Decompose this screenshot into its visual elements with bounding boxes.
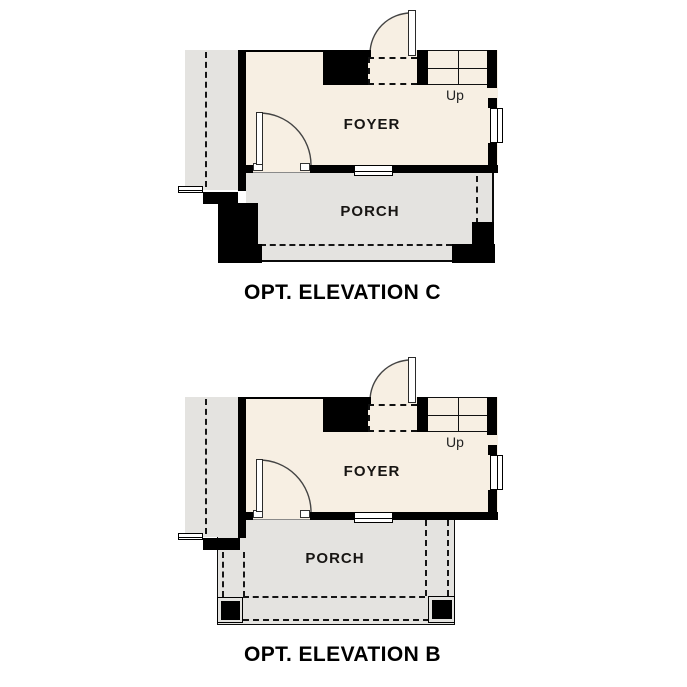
- garage-slab: [185, 397, 238, 537]
- porch-dashed-left-outer: [222, 552, 224, 597]
- right-wall-bottom: [488, 490, 497, 514]
- porch-dashed-front-upper: [243, 596, 425, 598]
- foyer-front-window: [354, 165, 393, 176]
- plan-caption: OPT. ELEVATION C: [180, 281, 505, 304]
- right-wall-mid: [488, 445, 497, 455]
- porch-room-label: PORCH: [325, 204, 415, 221]
- porch-column-left-lower: [218, 244, 262, 263]
- foyer-top-wall-line: [246, 397, 324, 399]
- plan-elevation-c: FOYER Up PORCH OPT. ELEVATION C: [180, 8, 505, 328]
- stairs-up-label: Up: [438, 435, 472, 450]
- garage-centerline-dashed: [205, 399, 207, 534]
- front-door-leaf: [408, 10, 416, 56]
- entry-wall-left: [323, 397, 371, 432]
- porch-right-edge-line: [492, 172, 494, 224]
- foyer-top-wall-line: [246, 50, 324, 52]
- right-wall-top: [487, 397, 497, 435]
- garage-window: [178, 186, 203, 193]
- porch-column-left-upper: [218, 203, 258, 244]
- porch-dashed-right-inner: [425, 520, 427, 596]
- garage-window-pane-line: [179, 190, 202, 191]
- right-window-pane-line: [497, 109, 498, 142]
- porch-dashed-front-lower: [243, 619, 429, 621]
- interior-door-leaf: [256, 112, 263, 165]
- foyer-right-window: [490, 455, 503, 490]
- stairs-up-label: Up: [438, 88, 472, 103]
- stairs: [428, 50, 487, 85]
- stair-center-line: [458, 398, 459, 431]
- garage-window-pane-line: [179, 537, 202, 538]
- foyer-room-label: FOYER: [327, 464, 417, 481]
- stair-center-line: [458, 51, 459, 84]
- porch-column-right-lower: [452, 244, 495, 263]
- interior-door-leaf: [256, 459, 263, 512]
- front-door-opening: [368, 404, 417, 432]
- right-wall-bottom: [488, 143, 497, 167]
- front-door-swing-fill: [370, 13, 411, 54]
- right-window-pane-line: [497, 456, 498, 489]
- foyer-right-window: [490, 108, 503, 143]
- front-door-opening: [368, 57, 417, 85]
- garage-window: [178, 533, 203, 540]
- porch-post-left: [221, 601, 240, 620]
- porch-post-right: [432, 600, 452, 619]
- entry-wall-right: [417, 397, 428, 432]
- front-window-pane-line: [355, 518, 392, 519]
- front-door-swing-fill: [370, 360, 411, 401]
- garage-centerline-dashed: [205, 52, 207, 187]
- front-door-leaf: [408, 357, 416, 403]
- garage-corner-wall: [203, 538, 240, 550]
- garage-slab: [185, 50, 238, 190]
- garage-side-wall: [238, 50, 246, 191]
- foyer-front-window: [354, 512, 393, 523]
- stairs: [428, 397, 487, 432]
- porch-roofline-dashed-front: [260, 244, 452, 246]
- plan-elevation-b: FOYER Up PORCH OPT. ELEVATION B: [180, 355, 505, 687]
- plan-caption: OPT. ELEVATION B: [180, 643, 505, 666]
- porch-column-right-upper: [472, 222, 494, 244]
- floor-plan-sheet: { "colors": { "background": "#ffffff", "…: [0, 0, 687, 687]
- porch-dashed-left-inner: [243, 552, 245, 597]
- porch-dashed-right-outer: [447, 520, 449, 596]
- front-door-swing-arc: [370, 360, 411, 401]
- right-wall-mid: [488, 98, 497, 108]
- right-wall-top: [487, 50, 497, 88]
- foyer-room-label: FOYER: [327, 117, 417, 134]
- porch-front-edge-line: [260, 260, 452, 262]
- entry-wall-right: [417, 50, 428, 85]
- interior-door-jamb-right: [300, 163, 310, 171]
- garage-side-wall: [238, 397, 246, 538]
- entry-wall-left: [323, 50, 371, 85]
- porch-floor: [217, 520, 455, 625]
- porch-room-label: PORCH: [290, 551, 380, 568]
- porch-roofline-dashed-right: [476, 176, 478, 224]
- front-door-swing-arc: [370, 13, 411, 54]
- interior-door-jamb-right: [300, 510, 310, 518]
- front-window-pane-line: [355, 171, 392, 172]
